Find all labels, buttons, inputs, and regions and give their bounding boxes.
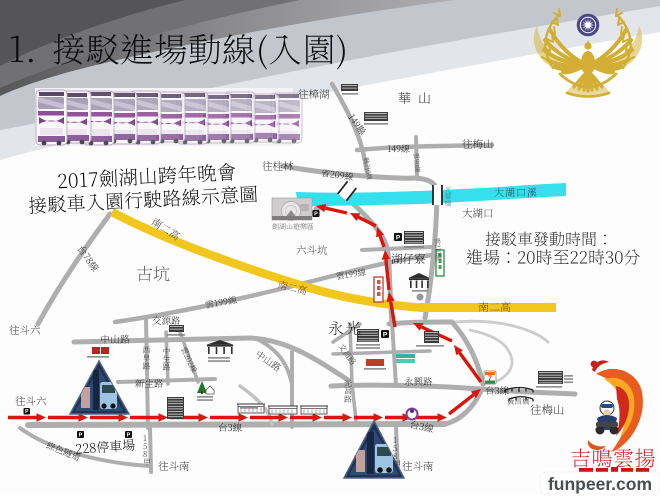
svg-text:P: P (396, 234, 401, 241)
svg-text:P: P (79, 432, 83, 438)
svg-text:P: P (127, 432, 131, 438)
svg-text:7: 7 (488, 376, 492, 383)
svg-text:funpeer.com: funpeer.com (548, 474, 652, 494)
svg-text:P: P (314, 211, 318, 217)
svg-text:P: P (383, 331, 388, 338)
